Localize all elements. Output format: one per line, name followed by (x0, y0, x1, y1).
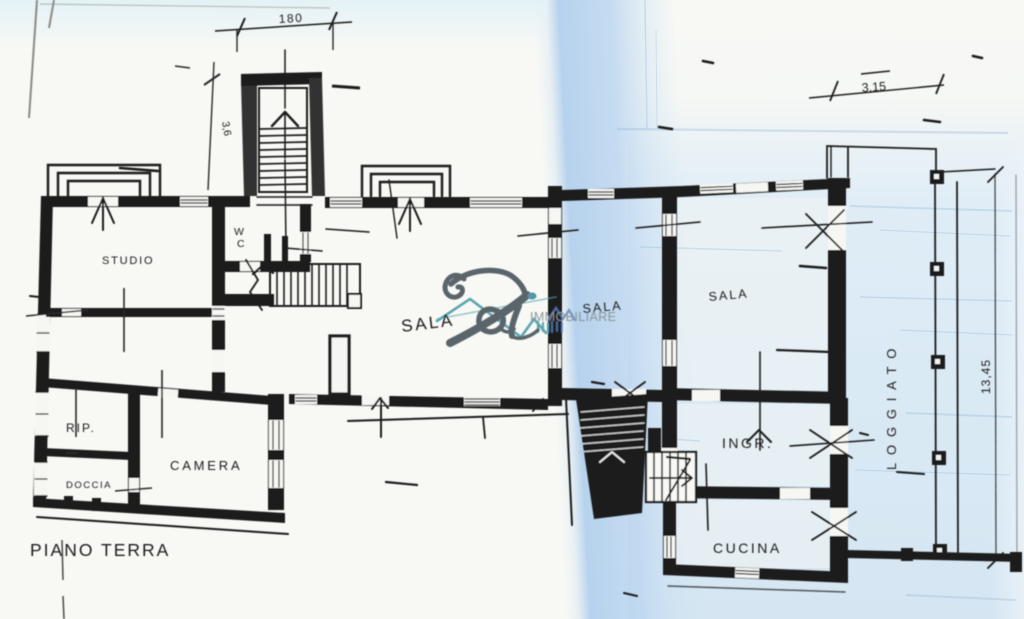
svg-text:LOGGIATO: LOGGIATO (884, 341, 899, 470)
svg-text:RIP.: RIP. (66, 421, 96, 435)
svg-text:3,6: 3,6 (219, 120, 233, 137)
svg-text:13,45: 13,45 (979, 359, 993, 394)
svg-text:CUCINA: CUCINA (713, 540, 782, 556)
svg-text:3,15: 3,15 (861, 79, 886, 95)
svg-text:C: C (237, 238, 245, 250)
svg-text:INGR.: INGR. (722, 435, 773, 451)
svg-text:PIANO TERRA: PIANO TERRA (30, 540, 170, 560)
svg-text:STUDIO: STUDIO (102, 255, 154, 267)
svg-text:W: W (234, 226, 244, 238)
svg-text:CAMERA: CAMERA (170, 458, 242, 473)
svg-text:180: 180 (278, 11, 303, 26)
svg-text:DOCCIA: DOCCIA (66, 480, 112, 491)
